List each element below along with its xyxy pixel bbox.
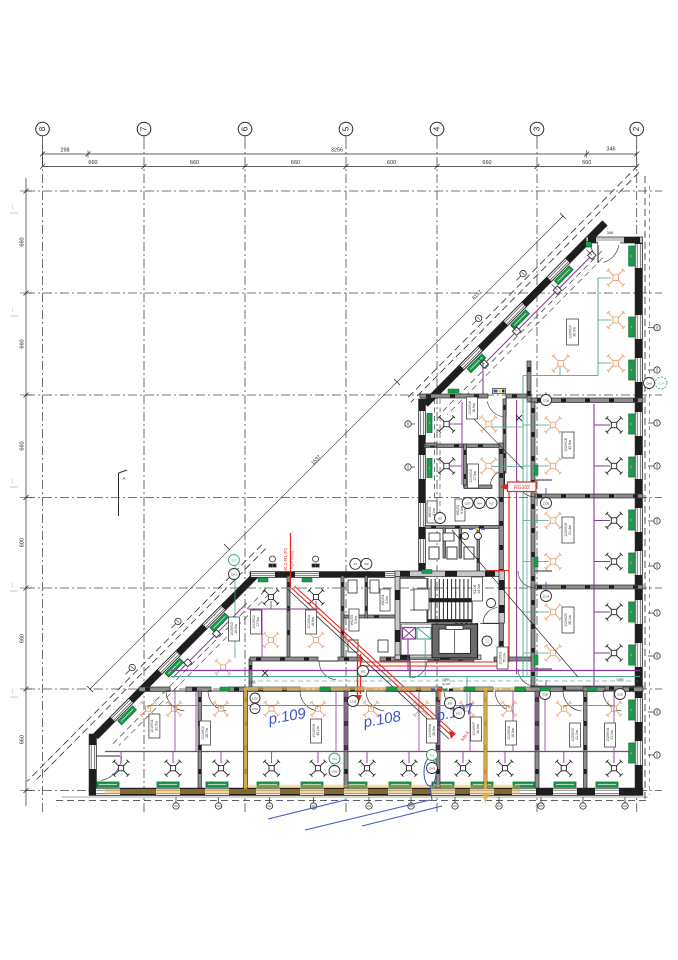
svg-text:4: 4 [432,126,441,131]
svg-text:660: 660 [88,160,97,166]
svg-text:102/V/20: 102/V/20 [564,613,568,627]
svg-text:101/V/09: 101/V/09 [312,724,316,738]
svg-text:~·~: ~·~ [11,688,15,693]
svg-text:CH1: CH1 [231,572,237,576]
svg-text:660: 660 [20,237,26,246]
svg-text:600: 600 [20,538,26,547]
svg-text:21.0m: 21.0m [575,730,579,740]
svg-text:102/V/19: 102/V/19 [564,523,568,537]
svg-text:CO6: CO6 [542,692,549,696]
svg-text:CO5: CO5 [543,501,550,505]
svg-text:KL/06: KL/06 [473,584,477,593]
svg-text:CO1: CO1 [252,707,259,711]
svg-text:660: 660 [291,160,300,166]
svg-text:660: 660 [20,634,26,643]
svg-text:43.5m: 43.5m [568,440,572,450]
svg-text:660: 660 [582,160,591,166]
svg-text:101/V/11: 101/V/11 [150,719,154,732]
svg-text:ⓘ: ⓘ [485,638,489,643]
svg-text:W1: W1 [361,669,366,673]
svg-text:WLZ-R1-P2: WLZ-R1-P2 [283,547,288,572]
svg-text:101/V/16: 101/V/16 [468,401,472,415]
svg-text:26.9m: 26.9m [432,726,436,736]
svg-text:101/V/08: 101/V/08 [428,724,432,738]
svg-text:17.5m: 17.5m [256,617,260,627]
svg-text:WC/02: WC/02 [428,507,432,517]
svg-text:101/V/13: 101/V/13 [230,622,234,636]
svg-text:CH3: CH3 [429,766,435,770]
svg-text:21.4m: 21.4m [568,525,572,535]
svg-text:298: 298 [60,148,69,154]
svg-text:5.5m: 5.5m [354,616,358,624]
svg-text:30.5m: 30.5m [155,721,159,731]
svg-text:CO2: CO2 [617,692,624,696]
svg-text:660: 660 [20,441,26,450]
svg-text:101/V/12: 101/V/12 [252,615,256,629]
svg-text:28.1m: 28.1m [568,615,572,625]
svg-text:18.6m: 18.6m [311,617,315,627]
svg-text:WC/05: WC/05 [350,615,354,625]
svg-text:CO7: CO7 [465,501,472,505]
svg-text:102/V/18: 102/V/18 [564,438,568,452]
svg-text:660: 660 [482,160,491,166]
svg-text:RG102: RG102 [514,485,530,491]
svg-text:366: 366 [607,230,614,235]
svg-text:101/V/14: 101/V/14 [307,615,311,629]
svg-text:101/V/07: 101/V/07 [472,722,476,736]
svg-text:101/V/15: 101/V/15 [469,469,473,483]
svg-text:CO8: CO8 [543,398,550,402]
svg-text:6: 6 [240,126,249,131]
svg-text:16.5m: 16.5m [234,624,238,634]
svg-text:5: 5 [341,126,350,131]
svg-text:PG: PG [448,701,453,705]
svg-text:43.0m: 43.0m [316,726,320,736]
svg-text:101/V/06: 101/V/06 [507,726,511,740]
svg-text:S14: S14 [658,382,664,386]
svg-text:101/V/10: 101/V/10 [201,726,205,740]
svg-text:P3: P3 [430,753,434,757]
svg-text:102/V/04: 102/V/04 [606,728,610,742]
svg-text:4p205: 4p205 [442,682,451,686]
svg-text:2: 2 [632,126,641,131]
svg-text:75.0m: 75.0m [503,653,507,663]
svg-text:A3: A3 [353,562,357,566]
svg-text:36.9m: 36.9m [573,327,577,337]
svg-text:SPR: SPR [248,681,256,685]
svg-text:101/V/01: 101/V/01 [498,651,502,665]
svg-text:16.9m: 16.9m [472,403,476,413]
svg-text:SPR: SPR [616,678,624,682]
svg-text:3: 3 [532,126,541,131]
svg-text:~·~: ~·~ [11,582,15,587]
svg-text:W4: W4 [477,501,482,505]
svg-text:W2: W2 [364,562,369,566]
svg-text:7: 7 [139,126,148,131]
svg-text:3256: 3256 [331,148,343,154]
svg-text:4.2m: 4.2m [385,596,389,604]
svg-text:660: 660 [190,160,199,166]
svg-text:14.3m: 14.3m [477,584,481,594]
svg-text:660: 660 [20,735,26,744]
svg-text:~·~: ~·~ [11,204,15,209]
svg-text:A: A [122,476,125,481]
svg-text:CH6: CH6 [646,381,652,385]
svg-text:8: 8 [38,126,47,131]
svg-text:WC/04: WC/04 [381,595,385,605]
svg-text:16.9m: 16.9m [476,724,480,734]
svg-text:21.0m: 21.0m [610,730,614,740]
svg-text:CO3: CO3 [350,699,357,703]
svg-text:W3: W3 [332,757,337,761]
svg-text:~·~: ~·~ [11,478,15,483]
svg-text:WC/03: WC/03 [456,505,460,515]
svg-text:16.9m: 16.9m [511,728,515,738]
svg-text:102/V/05: 102/V/05 [571,728,575,742]
svg-text:AŻ: AŻ [438,515,442,520]
svg-text:YDY 5x10: YDY 5x10 [290,550,295,569]
svg-text:~·~: ~·~ [11,307,15,312]
svg-text:102/V/17: 102/V/17 [568,325,572,339]
svg-text:346: 346 [606,147,615,153]
svg-text:KS: KS [489,501,493,505]
svg-text:CO4: CO4 [543,594,550,598]
svg-text:CH2: CH2 [331,769,337,773]
svg-text:LO2: LO2 [252,696,258,700]
svg-text:28.7m: 28.7m [205,728,209,738]
svg-text:660: 660 [20,339,26,348]
svg-text:17.5m: 17.5m [473,471,477,481]
svg-text:SP: SP [232,558,236,562]
svg-text:600: 600 [387,160,396,166]
svg-text:KG1: KG1 [456,711,462,715]
